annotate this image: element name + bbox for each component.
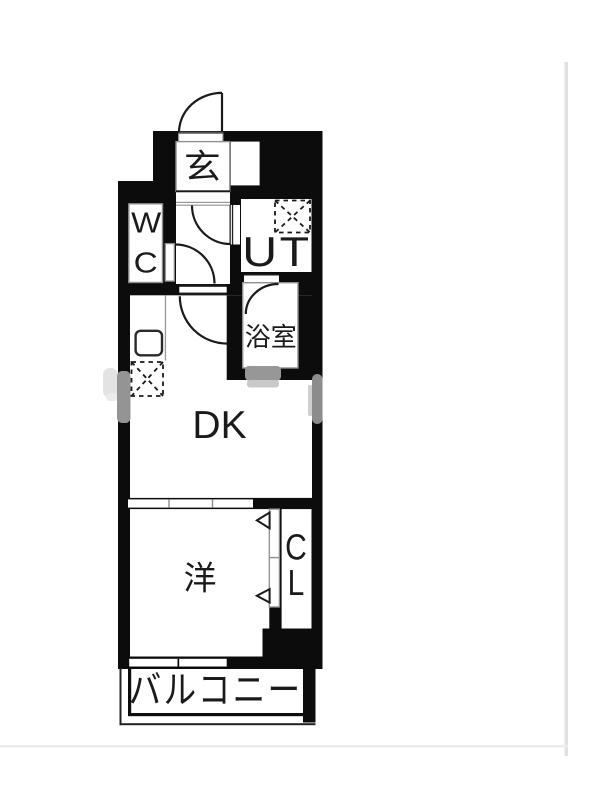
svg-text:バルコニー: バルコニー [129, 669, 303, 712]
svg-text:洋: 洋 [184, 560, 217, 597]
svg-text:C: C [285, 528, 307, 568]
svg-text:玄: 玄 [184, 149, 221, 186]
svg-text:C: C [134, 247, 158, 279]
svg-text:UT: UT [242, 228, 311, 275]
svg-text:DK: DK [192, 404, 246, 447]
svg-text:浴室: 浴室 [245, 322, 297, 352]
svg-text:L: L [288, 563, 305, 603]
svg-text:W: W [131, 207, 161, 239]
